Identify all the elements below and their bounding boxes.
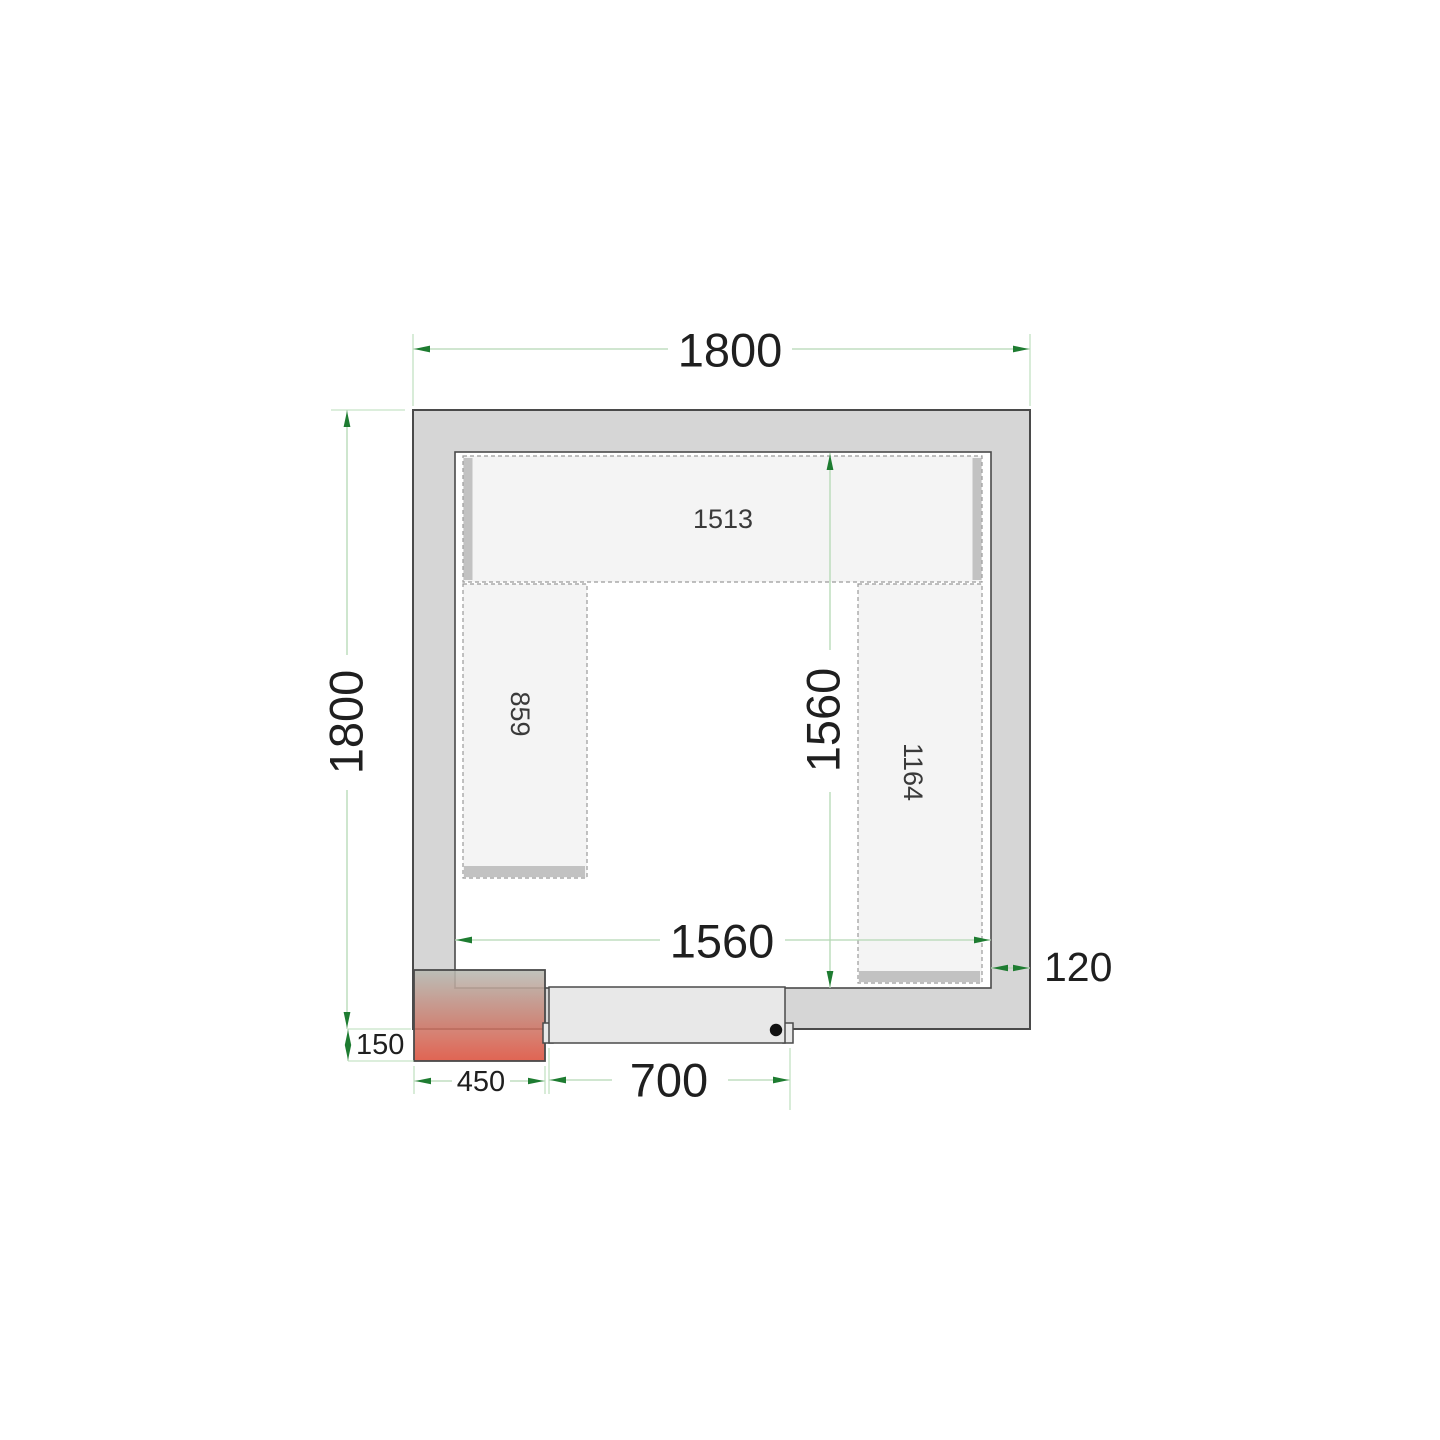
dim-outer-width-arrow-left [414, 346, 430, 353]
dim-unit-protrusion-value: 150 [356, 1029, 404, 1061]
dim-inner-depth-value: 1560 [797, 668, 850, 773]
dim-outer-width-value: 1800 [678, 324, 783, 377]
shelf-right-end-bar [859, 971, 980, 982]
dim-unit-width-value: 450 [457, 1066, 505, 1098]
shelf-top-right-end-bar [973, 458, 982, 580]
dim-wall-thickness-value: 120 [1044, 944, 1112, 990]
dim-unit-arrow-left [415, 1078, 431, 1084]
shelf-top-length-label: 1513 [693, 504, 753, 534]
dim-unit-protrusion: 150 [345, 1029, 414, 1061]
dim-protrusion-arrow-top [345, 1030, 351, 1045]
cold-room-plan-drawing: 1513 859 1164 1800 1800 1560 [0, 0, 1440, 1440]
dim-outer-depth: 1800 [320, 410, 412, 1029]
dim-door-arrow-left [550, 1077, 566, 1084]
shelf-right-length-label: 1164 [898, 743, 928, 801]
dim-outer-depth-arrow-top [344, 411, 351, 427]
dim-door-width-value: 700 [630, 1054, 708, 1107]
dim-unit-arrow-right [528, 1078, 544, 1084]
dim-outer-width: 1800 [413, 324, 1030, 407]
dim-protrusion-arrow-bottom [345, 1045, 351, 1060]
door-handle-dot [770, 1024, 782, 1036]
shelf-top-left-end-bar [464, 458, 473, 580]
dim-outer-depth-value: 1800 [320, 670, 373, 775]
floor-plan-page: 1513 859 1164 1800 1800 1560 [0, 0, 1440, 1440]
shelf-left-end-bar [464, 866, 585, 877]
dim-door-arrow-right [773, 1077, 789, 1084]
dim-outer-depth-arrow-bottom [344, 1012, 351, 1028]
door-assembly [543, 987, 793, 1043]
dim-inner-width-value: 1560 [670, 915, 775, 968]
cooling-unit [414, 970, 545, 1061]
dim-outer-width-arrow-right [1013, 346, 1029, 353]
dim-unit-width: 450 [414, 1066, 545, 1098]
door-panel [549, 987, 785, 1043]
shelf-left-length-label: 859 [505, 691, 535, 736]
dim-door-width: 700 [549, 1048, 790, 1110]
